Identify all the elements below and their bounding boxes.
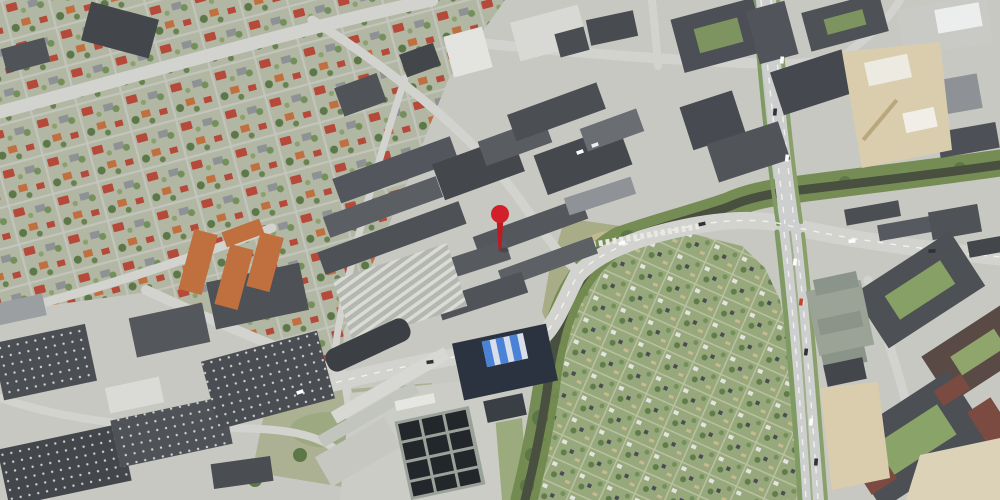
car [780, 56, 784, 63]
car [804, 348, 808, 355]
treatment-basins [395, 406, 486, 500]
car [799, 298, 803, 305]
aerial-map-canvas[interactable] [0, 0, 1000, 500]
car [928, 249, 935, 253]
pin-head [491, 205, 509, 223]
map-viewport[interactable] [0, 0, 1000, 500]
car [814, 458, 818, 465]
tree [293, 448, 307, 462]
car [793, 258, 797, 265]
car [809, 418, 813, 425]
construction-ground [820, 382, 890, 490]
car [773, 108, 777, 115]
car [848, 239, 855, 243]
car [785, 154, 789, 161]
